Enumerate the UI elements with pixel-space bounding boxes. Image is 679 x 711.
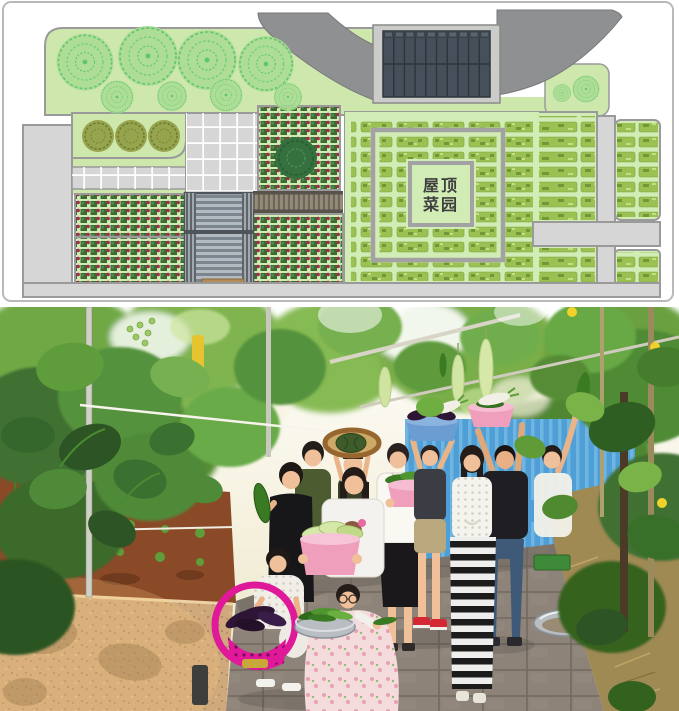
row-bed-b xyxy=(615,120,660,287)
plan-label-line2: 菜园 xyxy=(422,195,459,214)
rooftop-garden-plan-figure: 屋顶 菜园 xyxy=(0,0,679,307)
walk-grid-lines xyxy=(72,167,186,189)
left-terrace xyxy=(23,125,72,287)
khaki-shorts xyxy=(414,519,446,553)
person-striped-skirt xyxy=(450,445,496,703)
horizontal-path xyxy=(533,222,660,246)
basket-base xyxy=(242,659,268,668)
row-bed-a xyxy=(539,116,595,220)
boardwalk-bridge xyxy=(253,191,343,213)
shrubs xyxy=(82,120,180,152)
striped-maxi-skirt xyxy=(450,537,496,689)
central-plaza-grid xyxy=(186,113,258,193)
green-mat xyxy=(534,555,570,570)
pipe-fitting xyxy=(192,665,208,705)
greenhouse-harvest-photo xyxy=(0,307,679,711)
melon xyxy=(336,434,366,453)
plan-label-line1: 屋顶 xyxy=(423,176,459,195)
round-tree xyxy=(275,137,317,179)
skylight-building xyxy=(373,25,500,103)
strawberry-bed-center xyxy=(258,106,340,190)
bottom-walk xyxy=(23,283,660,297)
black-skirt xyxy=(379,543,423,607)
metal-pole-2 xyxy=(266,307,271,457)
strawberry-bed-left xyxy=(75,194,189,287)
strawberry-bed-lower xyxy=(253,214,343,287)
concentric-vegetable-beds: 屋顶 菜园 xyxy=(345,112,597,287)
vertical-path xyxy=(597,116,615,287)
row-bed-a-lower xyxy=(539,248,595,286)
pergola xyxy=(185,193,253,287)
